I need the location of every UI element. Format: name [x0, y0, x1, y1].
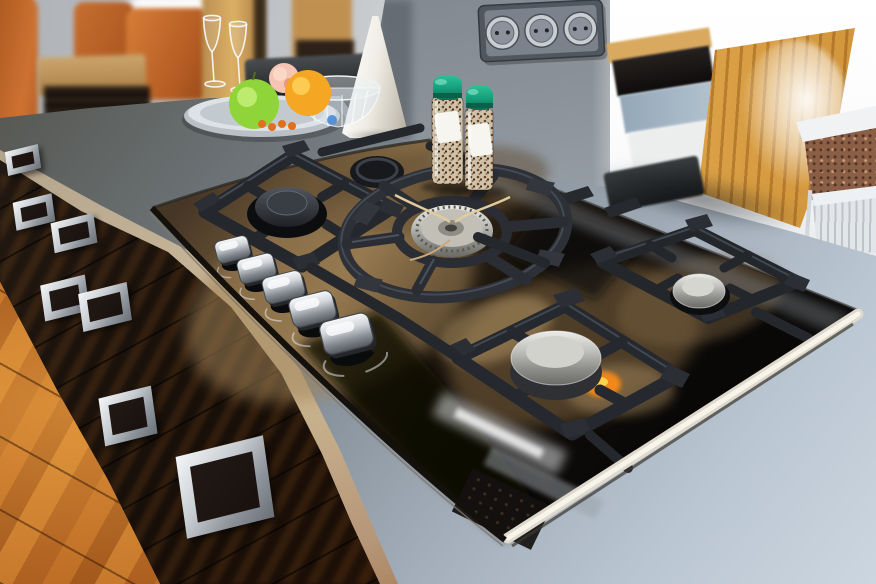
gas-cooktop	[0, 0, 876, 584]
kitchen-photo	[0, 0, 876, 584]
spice-grinder	[432, 76, 463, 184]
grinder-label	[434, 110, 462, 143]
spice-grinder	[465, 86, 493, 190]
wok-burner-head	[411, 205, 493, 257]
front-right-burner-cap	[510, 331, 602, 400]
